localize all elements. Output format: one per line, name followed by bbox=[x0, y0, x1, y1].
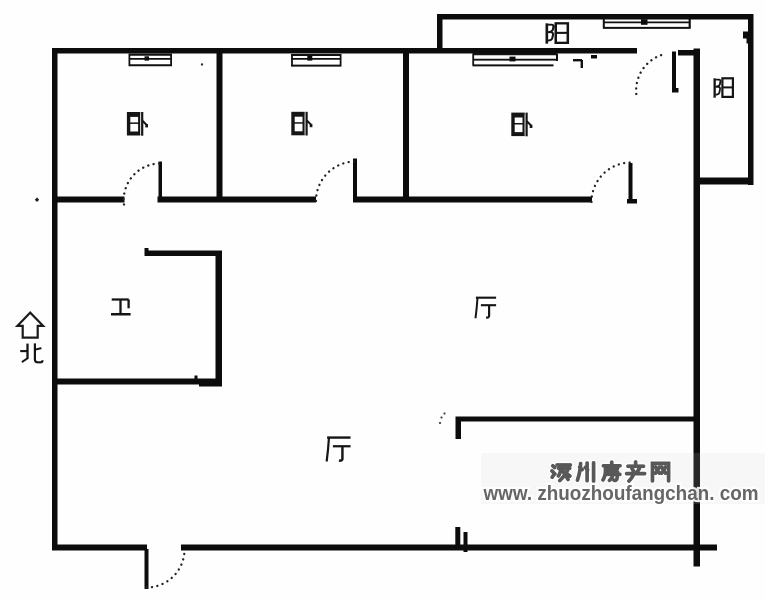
svg-text:www. zhuozhoufangchan. com: www. zhuozhoufangchan. com bbox=[483, 482, 759, 505]
